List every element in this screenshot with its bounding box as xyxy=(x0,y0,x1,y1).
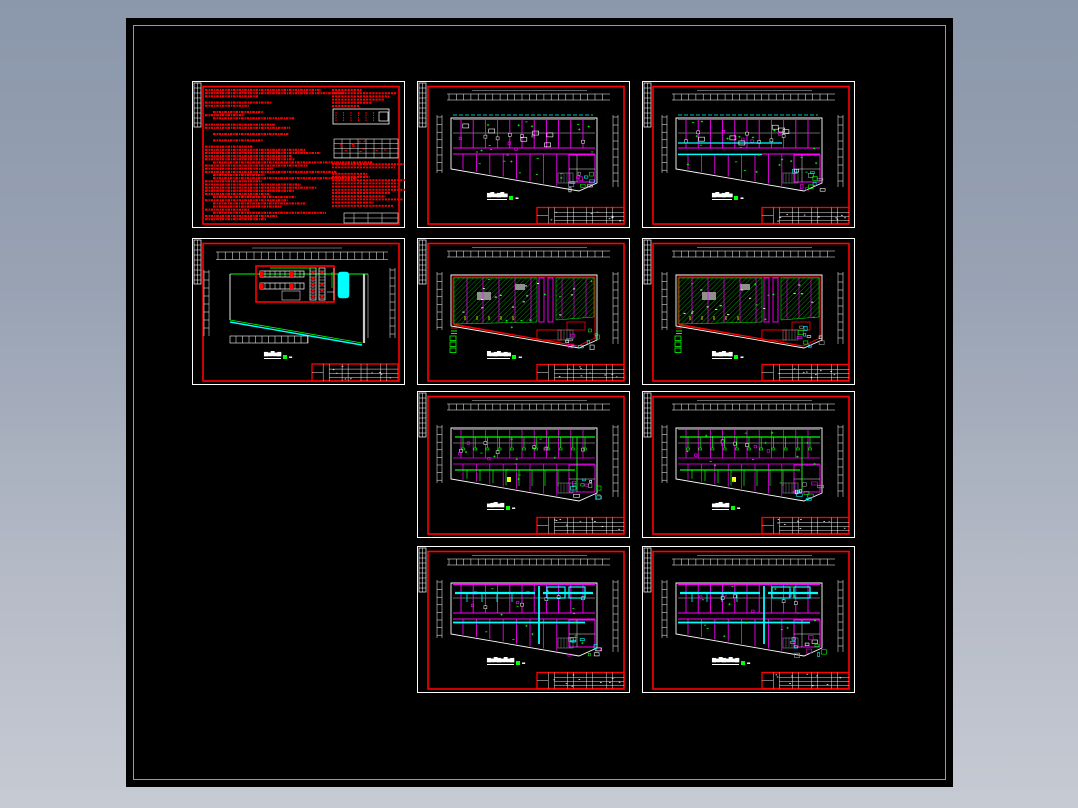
drawing-title: ▆▅▇▅▆ xyxy=(264,352,281,359)
drawing-canvas xyxy=(642,391,855,538)
sheet-vent-plan-2: ▆▅▇▆▅▇▅▆ ▪▪ xyxy=(642,546,855,693)
drawing-canvas xyxy=(417,238,630,385)
drawing-title: ▅▆▇▅▆ xyxy=(712,503,729,510)
scale-swatch xyxy=(741,661,745,665)
drawing-title-row: ▆▅▇▅▆ ▪▪ xyxy=(264,350,292,359)
drawing-canvas xyxy=(417,546,630,693)
drawing-canvas xyxy=(192,238,405,385)
scale-text: ▪▪ xyxy=(740,197,743,200)
scale-swatch xyxy=(283,355,287,359)
desktop-background: ▆▅▇▅▆ ▪▪ ▆▇▅▆▇▅ ▪▪ ▆▇▅▆▇▅ ▪▪ xyxy=(0,0,1078,808)
drawing-canvas xyxy=(417,391,630,538)
drawing-title: ▅▆▇▅▆ xyxy=(487,503,504,510)
sheet-hatch-plan-1: ▇▅▆▇▅▆▅ ▪▪ xyxy=(417,238,630,385)
drawing-canvas xyxy=(192,81,405,228)
sheet-duct-plan-2: ▅▆▇▅▆ ▪▪ xyxy=(642,391,855,538)
sheet-design-notes xyxy=(192,81,405,228)
scale-swatch xyxy=(512,355,516,359)
drawing-title: ▆▅▇▆▅▇▅▆ xyxy=(487,658,514,665)
drawing-canvas xyxy=(642,238,855,385)
scale-swatch xyxy=(734,196,738,200)
scale-text: ▪▪ xyxy=(512,507,515,510)
drawing-title-row: ▆▇▅▆▇▅ ▪▪ xyxy=(712,191,743,200)
drawing-title-row: ▇▅▆▇▅▆ ▪▪ xyxy=(712,350,743,359)
drawing-title-row: ▅▆▇▅▆ ▪▪ xyxy=(712,501,740,510)
scale-text: ▪▪ xyxy=(289,356,292,359)
scale-swatch xyxy=(516,661,520,665)
sheet-site-plan: ▆▅▇▅▆ ▪▪ xyxy=(192,238,405,385)
cad-preview-canvas: ▆▅▇▅▆ ▪▪ ▆▇▅▆▇▅ ▪▪ ▆▇▅▆▇▅ ▪▪ xyxy=(126,18,953,787)
scale-swatch xyxy=(509,196,513,200)
scale-text: ▪▪ xyxy=(747,662,750,665)
drawing-title: ▇▅▆▇▅▆ xyxy=(712,352,732,359)
drawing-title-row: ▆▅▇▆▅▇▅▆ ▪▪ xyxy=(712,656,750,665)
scale-swatch xyxy=(506,506,510,510)
sheet-floor-plan-1: ▆▇▅▆▇▅ ▪▪ xyxy=(417,81,630,228)
drawing-canvas xyxy=(642,546,855,693)
sheet-floor-plan-2: ▆▇▅▆▇▅ ▪▪ xyxy=(642,81,855,228)
sheet-vent-plan-1: ▆▅▇▆▅▇▅▆ ▪▪ xyxy=(417,546,630,693)
sheet-hatch-plan-2: ▇▅▆▇▅▆ ▪▪ xyxy=(642,238,855,385)
drawing-title: ▆▇▅▆▇▅ xyxy=(712,193,732,200)
drawing-title: ▇▅▆▇▅▆▅ xyxy=(487,352,510,359)
scale-text: ▪▪ xyxy=(515,197,518,200)
drawing-title-row: ▇▅▆▇▅▆▅ ▪▪ xyxy=(487,350,522,359)
drawing-title: ▆▇▅▆▇▅ xyxy=(487,193,507,200)
scale-swatch xyxy=(731,506,735,510)
drawing-canvas xyxy=(642,81,855,228)
drawing-title: ▆▅▇▆▅▇▅▆ xyxy=(712,658,739,665)
sheet-duct-plan-1: ▅▆▇▅▆ ▪▪ xyxy=(417,391,630,538)
drawing-canvas xyxy=(417,81,630,228)
scale-swatch xyxy=(734,355,738,359)
drawing-title-row: ▆▅▇▆▅▇▅▆ ▪▪ xyxy=(487,656,525,665)
drawing-title-row: ▆▇▅▆▇▅ ▪▪ xyxy=(487,191,518,200)
scale-text: ▪▪ xyxy=(740,356,743,359)
drawing-title-row: ▅▆▇▅▆ ▪▪ xyxy=(487,501,515,510)
scale-text: ▪▪ xyxy=(518,356,521,359)
scale-text: ▪▪ xyxy=(522,662,525,665)
scale-text: ▪▪ xyxy=(737,507,740,510)
